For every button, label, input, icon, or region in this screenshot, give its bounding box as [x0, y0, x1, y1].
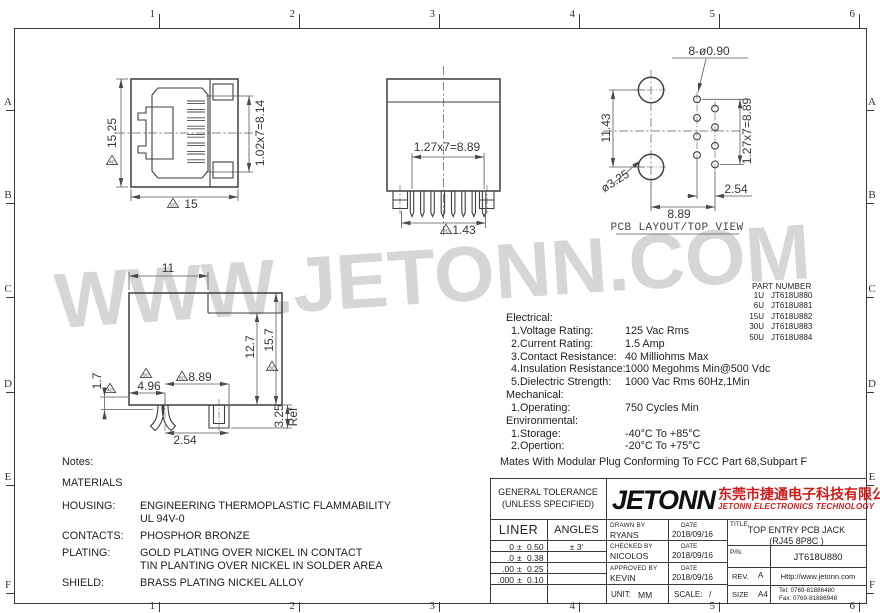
- signoff-name: NICOLOS: [610, 551, 648, 561]
- fax: Fax: 0769-81886948: [779, 595, 837, 602]
- scale-label: SCALE:: [674, 590, 702, 599]
- tolerance-value: 0.50: [527, 542, 544, 552]
- company-name-cn: 东莞市捷通电子科技有限公司: [718, 484, 880, 504]
- tb-line: [490, 540, 727, 541]
- rev-value: A: [758, 571, 763, 580]
- tb-line: [668, 519, 669, 603]
- signoff-date-label: DATE: [681, 543, 697, 550]
- pn-label: P/N.: [730, 549, 743, 556]
- tolerance-value: 0.38: [527, 553, 544, 563]
- signoff-role: APPROVED BY: [610, 565, 657, 572]
- tolerance-pm: ±: [517, 542, 522, 552]
- tb-line: [727, 585, 866, 586]
- signoff-date-label: DATE: [681, 565, 697, 572]
- tolerance-title-1: GENERAL TOLERANCE: [490, 487, 606, 497]
- signoff-date: 2018/09/16: [672, 551, 713, 560]
- unit-value: MM: [638, 590, 652, 600]
- signoff-date: 2018/09/16: [672, 573, 713, 582]
- signoff-role: DRAWN BY: [610, 522, 645, 529]
- scale-value: /: [709, 589, 711, 599]
- tolerance-pm: ±: [517, 564, 522, 574]
- title-block: GENERAL TOLERANCE (UNLESS SPECIFIED) LIN…: [0, 0, 880, 613]
- tb-line: [490, 584, 727, 585]
- signoff-date-label: DATE: [681, 522, 697, 529]
- drawing-sheet: WWW.JETONN.COM 112233445566AABBCCDDEEFF: [0, 0, 880, 613]
- tolerance-digits: .00: [492, 564, 514, 574]
- unit-label: UNIT:: [611, 590, 631, 599]
- tb-line: [727, 567, 866, 568]
- signoff-date: 2018/09/16: [672, 530, 713, 539]
- size-value: A4: [758, 590, 768, 599]
- tolerance-value: 0.25: [527, 564, 544, 574]
- tb-line: [490, 478, 866, 479]
- tolerance-pm: ±: [517, 553, 522, 563]
- tolerance-pm: ±: [517, 575, 522, 585]
- angle-tolerance: ± 3': [547, 542, 606, 552]
- signoff-name: RYANS: [610, 530, 639, 540]
- drawing-title-line1: TOP ENTRY PCB JACK: [727, 525, 866, 535]
- tolerance-col-angles: ANGLES: [547, 524, 606, 536]
- signoff-name: KEVIN: [610, 573, 636, 583]
- tolerance-digits: .000: [492, 575, 514, 585]
- tolerance-digits: .0: [492, 553, 514, 563]
- size-label: SIZE: [732, 590, 749, 599]
- pn-value: JT618U880: [770, 552, 866, 563]
- tel: Tel: 0769-81886480: [779, 587, 835, 594]
- company-name-en: JETONN ELECTRONICS TECHNOLOGY: [718, 502, 874, 511]
- tb-line: [490, 562, 727, 563]
- tolerance-value: 0.10: [527, 575, 544, 585]
- rev-label: REV.: [732, 572, 749, 581]
- tolerance-digits: 0: [492, 542, 514, 552]
- signoff-role: CHECKED BY: [610, 543, 653, 550]
- company-logo: JETONN: [612, 485, 715, 516]
- website: Http://www.jetonn.com: [770, 572, 866, 581]
- tolerance-col-liner: LINER: [490, 523, 547, 537]
- tolerance-title-2: (UNLESS SPECIFIED): [490, 499, 606, 509]
- drawing-title-line2: (RJ45 8P8C ): [727, 536, 866, 546]
